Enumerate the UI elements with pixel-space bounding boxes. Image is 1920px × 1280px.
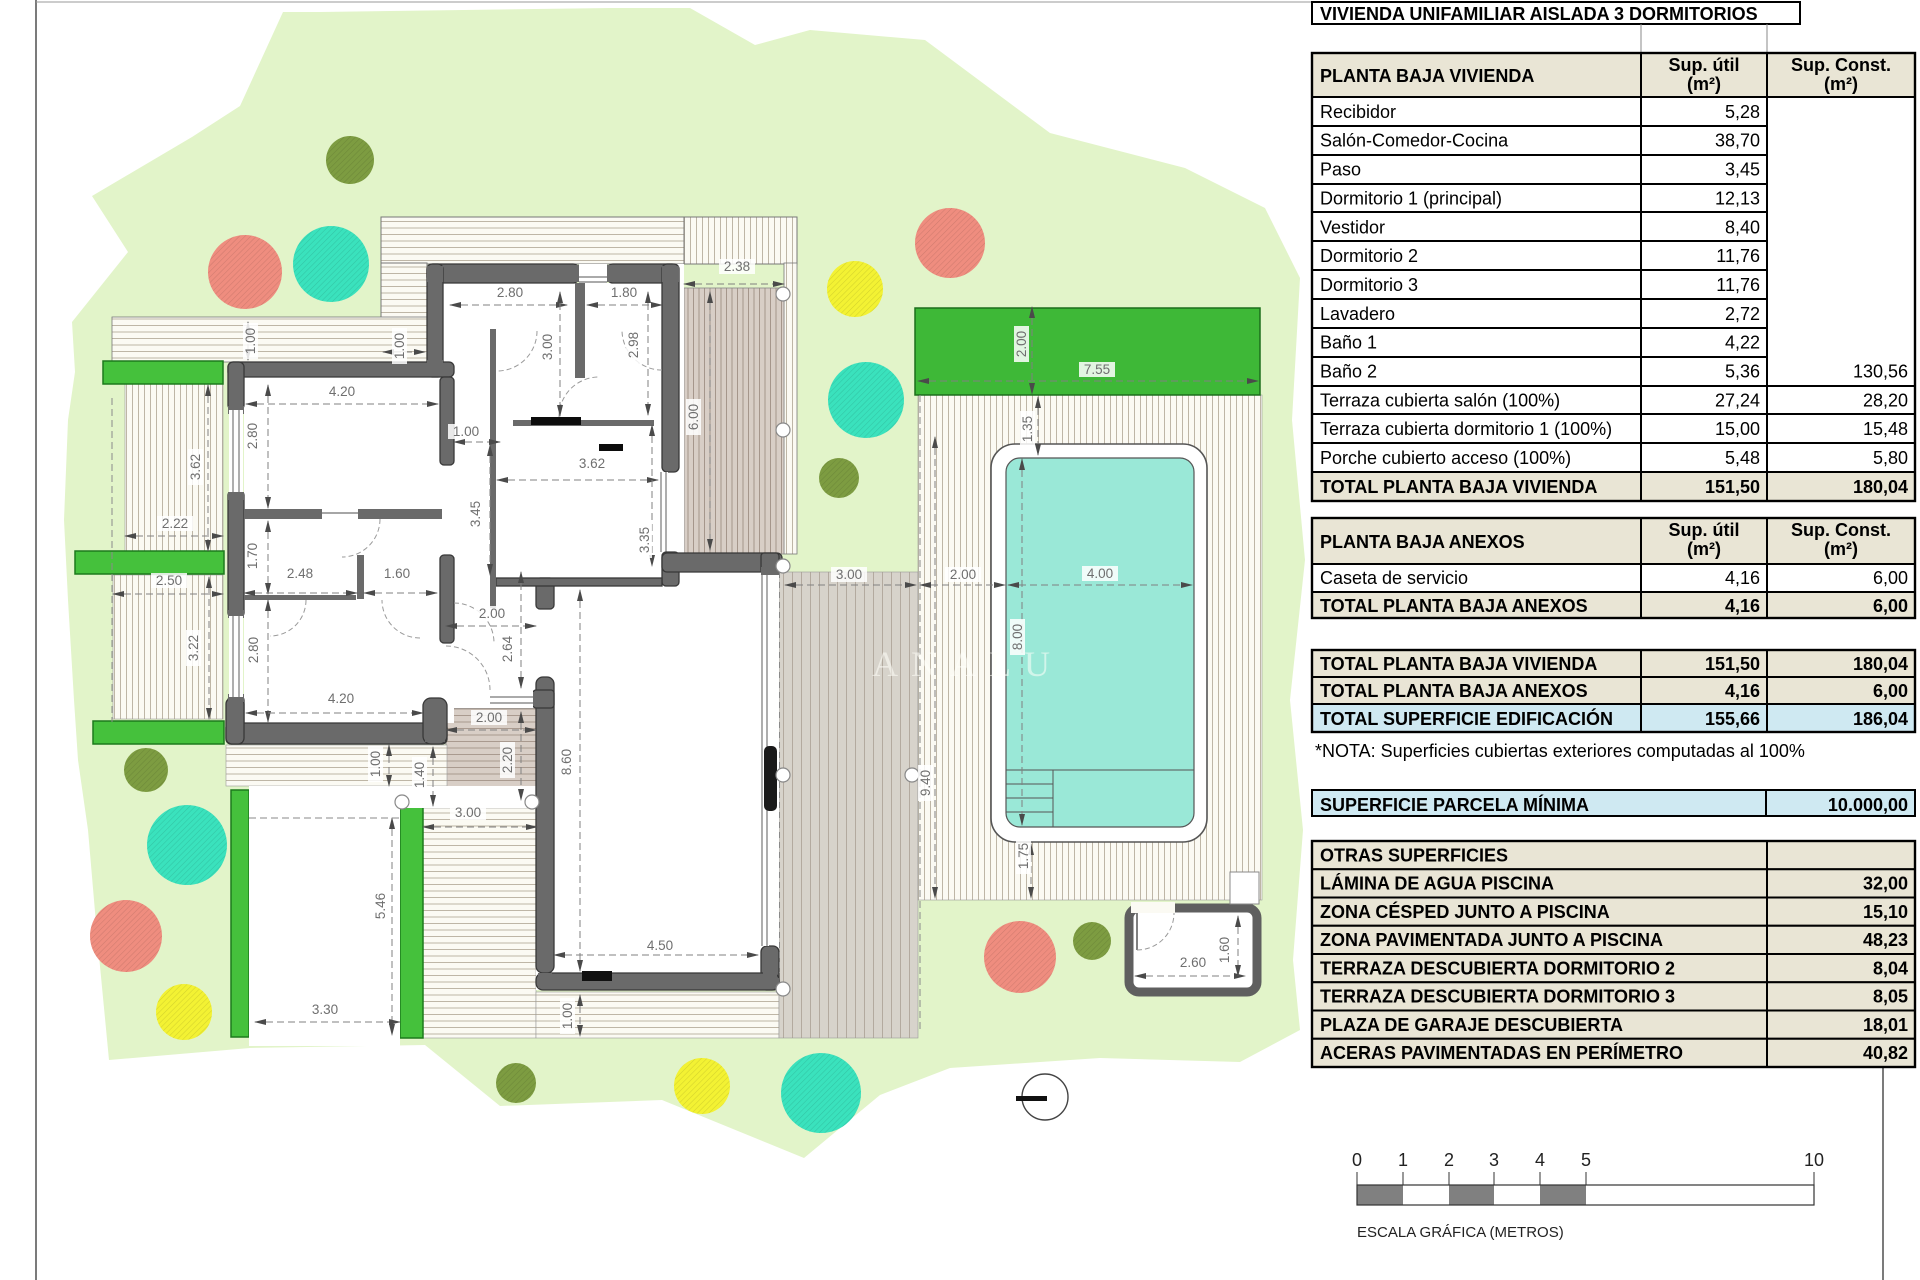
- svg-text:1.00: 1.00: [243, 328, 258, 354]
- svg-text:2.22: 2.22: [162, 516, 188, 531]
- svg-text:15,00: 15,00: [1715, 419, 1760, 439]
- svg-text:3.00: 3.00: [836, 567, 862, 582]
- svg-text:*NOTA: Superficies cubiertas e: *NOTA: Superficies cubiertas exteriores …: [1315, 741, 1805, 761]
- svg-text:5,48: 5,48: [1725, 448, 1760, 468]
- svg-text:38,70: 38,70: [1715, 131, 1760, 151]
- svg-text:3.45: 3.45: [468, 501, 483, 527]
- svg-text:Terraza cubierta dormitorio 1: Terraza cubierta dormitorio 1 (100%): [1320, 419, 1612, 439]
- svg-text:PLAZA DE GARAJE DESCUBIERTA: PLAZA DE GARAJE DESCUBIERTA: [1320, 1015, 1623, 1035]
- svg-text:Baño 1: Baño 1: [1320, 333, 1377, 353]
- svg-text:3,45: 3,45: [1725, 160, 1760, 180]
- svg-text:ACERAS PAVIMENTADAS EN PERÍMET: ACERAS PAVIMENTADAS EN PERÍMETRO: [1320, 1042, 1683, 1063]
- svg-text:186,04: 186,04: [1853, 709, 1908, 729]
- svg-text:15,48: 15,48: [1863, 419, 1908, 439]
- svg-text:1.00: 1.00: [368, 751, 383, 777]
- svg-text:4.50: 4.50: [647, 938, 673, 953]
- svg-text:6,00: 6,00: [1873, 568, 1908, 588]
- svg-text:1.75: 1.75: [1016, 843, 1031, 869]
- svg-text:2.00: 2.00: [479, 606, 505, 621]
- svg-text:3.00: 3.00: [540, 334, 555, 360]
- svg-text:180,04: 180,04: [1853, 477, 1908, 497]
- svg-text:3.62: 3.62: [188, 454, 203, 480]
- svg-text:11,76: 11,76: [1716, 246, 1760, 266]
- svg-text:2.80: 2.80: [246, 637, 261, 663]
- svg-text:2.38: 2.38: [724, 259, 750, 274]
- svg-text:155,66: 155,66: [1705, 709, 1760, 729]
- svg-text:Sup. útil: Sup. útil: [1669, 520, 1740, 540]
- svg-text:TOTAL PLANTA BAJA VIVIENDA: TOTAL PLANTA BAJA VIVIENDA: [1320, 654, 1597, 674]
- svg-text:2.50: 2.50: [156, 573, 182, 588]
- svg-text:(m²): (m²): [1687, 74, 1721, 94]
- svg-text:15,10: 15,10: [1863, 902, 1908, 922]
- svg-text:4,22: 4,22: [1725, 333, 1760, 353]
- svg-text:Lavadero: Lavadero: [1320, 304, 1395, 324]
- svg-text:5,28: 5,28: [1725, 102, 1760, 122]
- svg-text:151,50: 151,50: [1705, 477, 1760, 497]
- svg-text:ANALU: ANALU: [872, 644, 1063, 684]
- svg-text:8,40: 8,40: [1725, 217, 1760, 237]
- svg-text:1.70: 1.70: [245, 543, 260, 569]
- svg-text:(m²): (m²): [1824, 539, 1858, 559]
- svg-text:6.00: 6.00: [686, 404, 701, 430]
- svg-text:32,00: 32,00: [1863, 874, 1908, 894]
- svg-text:1.35: 1.35: [1020, 416, 1035, 442]
- svg-text:Baño 2: Baño 2: [1320, 362, 1377, 382]
- svg-text:1.00: 1.00: [453, 424, 479, 439]
- svg-text:Sup. Const.: Sup. Const.: [1791, 520, 1891, 540]
- svg-text:2.80: 2.80: [245, 423, 260, 449]
- svg-text:1.00: 1.00: [392, 333, 407, 359]
- svg-text:9.40: 9.40: [918, 770, 933, 796]
- svg-text:TOTAL PLANTA BAJA ANEXOS: TOTAL PLANTA BAJA ANEXOS: [1320, 596, 1588, 616]
- svg-text:40,82: 40,82: [1863, 1043, 1908, 1063]
- svg-text:1.60: 1.60: [384, 566, 410, 581]
- svg-text:8.60: 8.60: [559, 749, 574, 775]
- svg-text:6,00: 6,00: [1873, 681, 1908, 701]
- svg-text:11,76: 11,76: [1716, 275, 1760, 295]
- svg-text:3.22: 3.22: [186, 635, 201, 661]
- svg-text:ESCALA GRÁFICA (METROS): ESCALA GRÁFICA (METROS): [1357, 1224, 1564, 1241]
- svg-text:4.20: 4.20: [329, 384, 355, 399]
- svg-text:4.00: 4.00: [1087, 566, 1113, 581]
- svg-text:2.98: 2.98: [626, 332, 641, 358]
- svg-text:Dormitorio 1 (principal): Dormitorio 1 (principal): [1320, 188, 1502, 208]
- svg-text:4.20: 4.20: [328, 691, 354, 706]
- svg-text:OTRAS SUPERFICIES: OTRAS SUPERFICIES: [1320, 845, 1508, 865]
- svg-text:Sup. útil: Sup. útil: [1669, 55, 1740, 75]
- svg-text:2.48: 2.48: [287, 566, 313, 581]
- svg-text:ZONA PAVIMENTADA JUNTO A PISCI: ZONA PAVIMENTADA JUNTO A PISCINA: [1320, 930, 1663, 950]
- svg-text:2.64: 2.64: [500, 635, 515, 662]
- svg-text:2.00: 2.00: [1014, 331, 1029, 357]
- svg-text:4,16: 4,16: [1725, 596, 1760, 616]
- svg-text:8,05: 8,05: [1873, 987, 1908, 1007]
- svg-text:PLANTA BAJA ANEXOS: PLANTA BAJA ANEXOS: [1320, 532, 1525, 552]
- svg-text:3.35: 3.35: [637, 527, 652, 553]
- svg-text:5,36: 5,36: [1725, 362, 1760, 382]
- svg-text:TERRAZA DESCUBIERTA DORMITORIO: TERRAZA DESCUBIERTA DORMITORIO 3: [1320, 987, 1675, 1007]
- svg-text:28,20: 28,20: [1863, 390, 1908, 410]
- svg-text:3.30: 3.30: [312, 1002, 338, 1017]
- svg-text:0: 0: [1352, 1150, 1362, 1170]
- svg-text:2.20: 2.20: [500, 747, 515, 773]
- svg-text:4,16: 4,16: [1725, 681, 1760, 701]
- svg-text:10: 10: [1804, 1150, 1824, 1170]
- svg-text:4: 4: [1535, 1150, 1545, 1170]
- svg-text:Paso: Paso: [1320, 160, 1361, 180]
- svg-text:2.00: 2.00: [476, 710, 502, 725]
- svg-text:Vestidor: Vestidor: [1320, 217, 1385, 237]
- svg-text:1.40: 1.40: [412, 762, 427, 788]
- svg-text:3.62: 3.62: [579, 456, 605, 471]
- svg-text:4,16: 4,16: [1725, 568, 1760, 588]
- svg-text:48,23: 48,23: [1863, 930, 1908, 950]
- svg-text:5,80: 5,80: [1873, 448, 1908, 468]
- svg-text:151,50: 151,50: [1705, 654, 1760, 674]
- svg-text:VIVIENDA UNIFAMILIAR AISLADA 3: VIVIENDA UNIFAMILIAR AISLADA 3 DORMITORI…: [1320, 4, 1758, 24]
- svg-text:SUPERFICIE PARCELA MÍNIMA: SUPERFICIE PARCELA MÍNIMA: [1320, 794, 1589, 815]
- svg-text:(m²): (m²): [1687, 539, 1721, 559]
- svg-text:10.000,00: 10.000,00: [1828, 795, 1908, 815]
- svg-text:Salón-Comedor-Cocina: Salón-Comedor-Cocina: [1320, 131, 1509, 151]
- svg-text:2.80: 2.80: [497, 285, 523, 300]
- svg-text:ZONA CÉSPED JUNTO A PISCINA: ZONA CÉSPED JUNTO A PISCINA: [1320, 901, 1610, 922]
- svg-text:5: 5: [1581, 1150, 1591, 1170]
- svg-text:TOTAL SUPERFICIE EDIFICACIÓN: TOTAL SUPERFICIE EDIFICACIÓN: [1320, 708, 1613, 729]
- svg-text:1.00: 1.00: [560, 1003, 575, 1029]
- svg-text:1.60: 1.60: [1217, 937, 1232, 963]
- svg-text:TOTAL PLANTA BAJA VIVIENDA: TOTAL PLANTA BAJA VIVIENDA: [1320, 477, 1597, 497]
- svg-text:Dormitorio 2: Dormitorio 2: [1320, 246, 1418, 266]
- svg-text:Caseta de servicio: Caseta de servicio: [1320, 568, 1468, 588]
- svg-text:180,04: 180,04: [1853, 654, 1908, 674]
- svg-text:3.00: 3.00: [455, 805, 481, 820]
- svg-text:Dormitorio 3: Dormitorio 3: [1320, 275, 1418, 295]
- svg-text:1.80: 1.80: [611, 285, 637, 300]
- svg-text:27,24: 27,24: [1715, 390, 1760, 410]
- svg-text:(m²): (m²): [1824, 74, 1858, 94]
- svg-text:130,56: 130,56: [1853, 362, 1908, 382]
- svg-text:PLANTA BAJA VIVIENDA: PLANTA BAJA VIVIENDA: [1320, 66, 1534, 86]
- svg-text:2,72: 2,72: [1725, 304, 1760, 324]
- svg-text:2.60: 2.60: [1180, 955, 1206, 970]
- svg-text:TOTAL PLANTA BAJA ANEXOS: TOTAL PLANTA BAJA ANEXOS: [1320, 681, 1588, 701]
- svg-text:Porche cubierto acceso (100%): Porche cubierto acceso (100%): [1320, 448, 1571, 468]
- svg-text:Recibidor: Recibidor: [1320, 102, 1396, 122]
- svg-text:Sup. Const.: Sup. Const.: [1791, 55, 1891, 75]
- svg-text:18,01: 18,01: [1863, 1015, 1908, 1035]
- svg-text:12,13: 12,13: [1715, 188, 1760, 208]
- svg-text:3: 3: [1489, 1150, 1499, 1170]
- svg-text:Terraza cubierta salón (100%): Terraza cubierta salón (100%): [1320, 390, 1560, 410]
- svg-text:2: 2: [1444, 1150, 1454, 1170]
- svg-text:TERRAZA DESCUBIERTA DORMITORIO: TERRAZA DESCUBIERTA DORMITORIO 2: [1320, 958, 1675, 978]
- svg-text:7.55: 7.55: [1084, 362, 1110, 377]
- svg-text:5.46: 5.46: [373, 893, 388, 919]
- svg-text:8,04: 8,04: [1873, 958, 1908, 978]
- svg-text:1: 1: [1398, 1150, 1408, 1170]
- svg-text:6,00: 6,00: [1873, 596, 1908, 616]
- svg-text:LÁMINA DE AGUA PISCINA: LÁMINA DE AGUA PISCINA: [1320, 873, 1554, 894]
- svg-text:2.00: 2.00: [950, 567, 976, 582]
